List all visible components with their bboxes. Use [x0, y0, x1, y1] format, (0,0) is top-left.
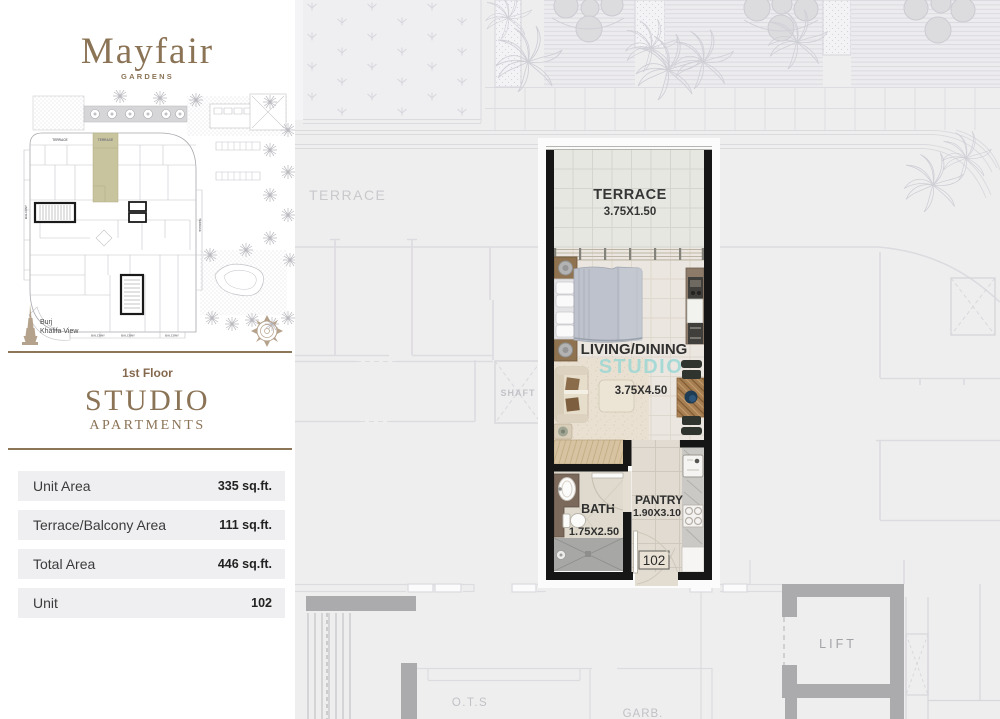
svg-text:BALCONY: BALCONY	[121, 334, 135, 338]
svg-text:Burj: Burj	[40, 319, 53, 326]
svg-text:Khalifa View: Khalifa View	[40, 328, 79, 335]
svg-text:1.90X3.10: 1.90X3.10	[633, 507, 681, 519]
svg-text:PANTRY: PANTRY	[635, 493, 683, 507]
svg-text:1.75X2.50: 1.75X2.50	[569, 526, 619, 538]
svg-text:O.T.S: O.T.S	[452, 697, 488, 709]
svg-text:BALCONY: BALCONY	[24, 205, 28, 219]
svg-text:TERRACE: TERRACE	[198, 218, 202, 232]
svg-text:BATH: BATH	[581, 502, 615, 516]
svg-text:TERRACE: TERRACE	[309, 187, 386, 203]
svg-text:TERRACE: TERRACE	[593, 187, 667, 203]
svg-text:3.75X4.50: 3.75X4.50	[615, 385, 667, 397]
svg-text:GARB.: GARB.	[623, 708, 664, 719]
svg-text:SHAFT: SHAFT	[501, 388, 536, 398]
svg-text:3.75X1.50: 3.75X1.50	[604, 206, 656, 218]
svg-text:STUDIO: STUDIO	[599, 356, 684, 378]
svg-text:TERRACE: TERRACE	[98, 138, 113, 142]
svg-text:BALCONY: BALCONY	[91, 334, 105, 338]
svg-text:TERRACE: TERRACE	[52, 138, 67, 142]
svg-text:LIFT: LIFT	[819, 637, 857, 651]
svg-text:102: 102	[643, 553, 666, 568]
svg-text:BALCONY: BALCONY	[165, 334, 179, 338]
